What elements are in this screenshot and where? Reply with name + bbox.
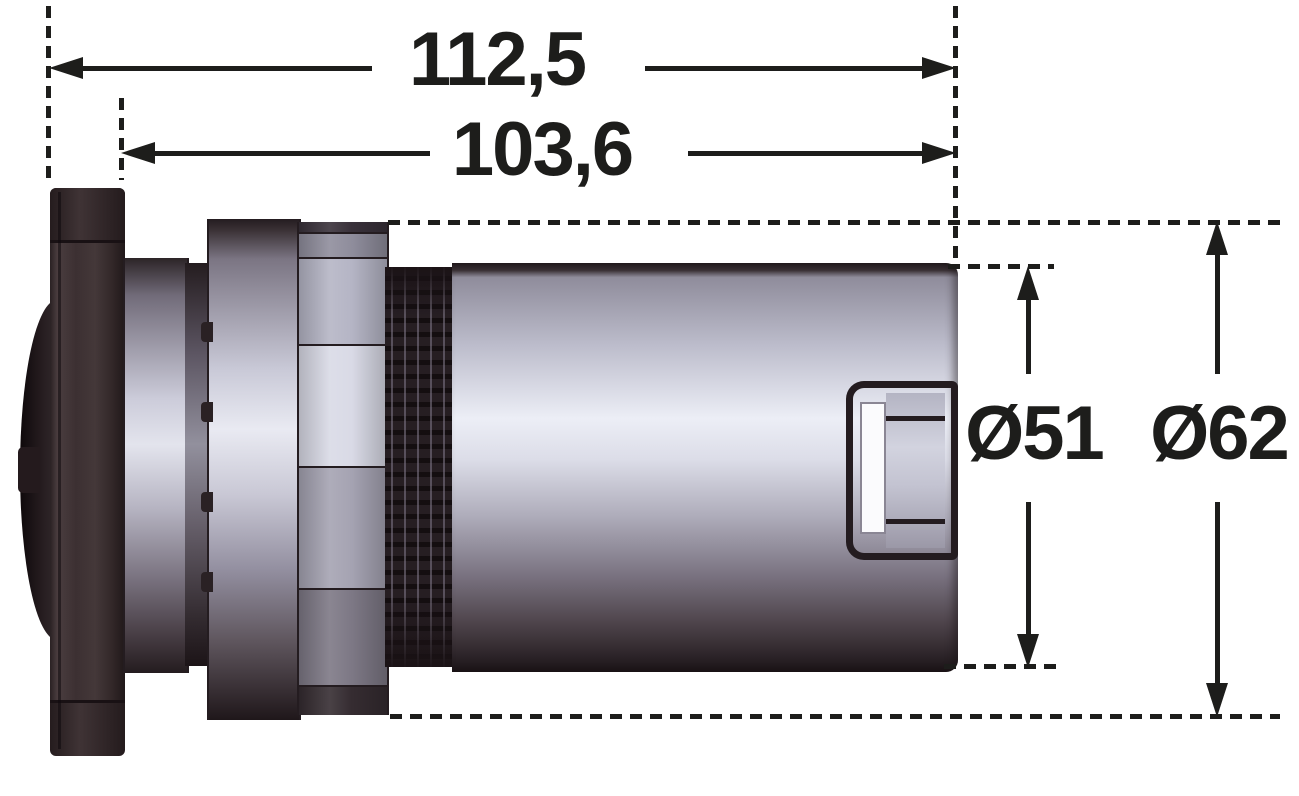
- arrowhead-left-icon: [49, 57, 83, 79]
- dimension-line-housing-length: [152, 151, 430, 156]
- arrowhead-right-icon: [922, 57, 956, 79]
- arrowhead-left-icon: [121, 142, 155, 164]
- collar-nub: [201, 492, 213, 512]
- arrowhead-up-icon: [1206, 221, 1228, 255]
- hex-nut-facet: [299, 222, 387, 232]
- front-flange-bottom-cap: [50, 700, 125, 756]
- extension-line-nut-bottom: [390, 714, 1280, 719]
- extension-line-rear-face: [953, 6, 958, 266]
- hex-nut-facet: [299, 466, 387, 588]
- collar-nub: [201, 402, 213, 422]
- lens-dome-tab: [18, 447, 40, 493]
- dim-label-body-diameter: Ø51: [965, 396, 1103, 472]
- hex-nut-facet: [299, 588, 387, 685]
- rear-connector-recess: [846, 381, 958, 560]
- technical-drawing: 112,5 103,6 Ø51 Ø62: [0, 0, 1299, 796]
- extension-line-front-face: [46, 6, 51, 184]
- rear-connector-edge: [886, 519, 945, 524]
- extension-line-body-bottom: [944, 664, 1064, 669]
- dim-label-overall-length: 112,5: [409, 22, 585, 98]
- dimension-line-overall-length: [645, 66, 923, 71]
- collar-ring: [207, 219, 301, 720]
- arrowhead-down-icon: [1206, 683, 1228, 717]
- dimension-line-overall-length: [80, 66, 372, 71]
- dimension-line-body-diameter: [1026, 298, 1031, 374]
- extension-line-flange-back: [119, 98, 124, 180]
- arrowhead-right-icon: [922, 142, 956, 164]
- rear-connector-edge: [886, 416, 945, 421]
- arrowhead-down-icon: [1017, 634, 1039, 668]
- rear-connector-slot: [860, 402, 886, 534]
- hex-nut-facet: [299, 257, 387, 344]
- thread-section: [385, 267, 452, 667]
- dimension-line-nut-diameter: [1215, 254, 1220, 374]
- hex-nut: [297, 222, 389, 715]
- extension-line-nut-top: [388, 220, 1280, 225]
- collar-nub: [201, 322, 213, 342]
- front-flange: [50, 188, 125, 753]
- hex-nut-facet: [299, 232, 387, 257]
- front-flange-seam: [58, 192, 61, 749]
- dimension-line-nut-diameter: [1215, 502, 1220, 684]
- collar-nub: [201, 572, 213, 592]
- front-flange-top-cap: [50, 188, 125, 243]
- hex-nut-facet: [299, 685, 387, 715]
- hex-nut-facet: [299, 344, 387, 466]
- dim-label-nut-diameter: Ø62: [1150, 396, 1288, 472]
- dimension-line-body-diameter: [1026, 502, 1031, 634]
- neck-ring: [123, 258, 189, 673]
- dim-label-housing-length: 103,6: [452, 112, 632, 188]
- arrowhead-up-icon: [1017, 266, 1039, 300]
- dimension-line-housing-length: [688, 151, 923, 156]
